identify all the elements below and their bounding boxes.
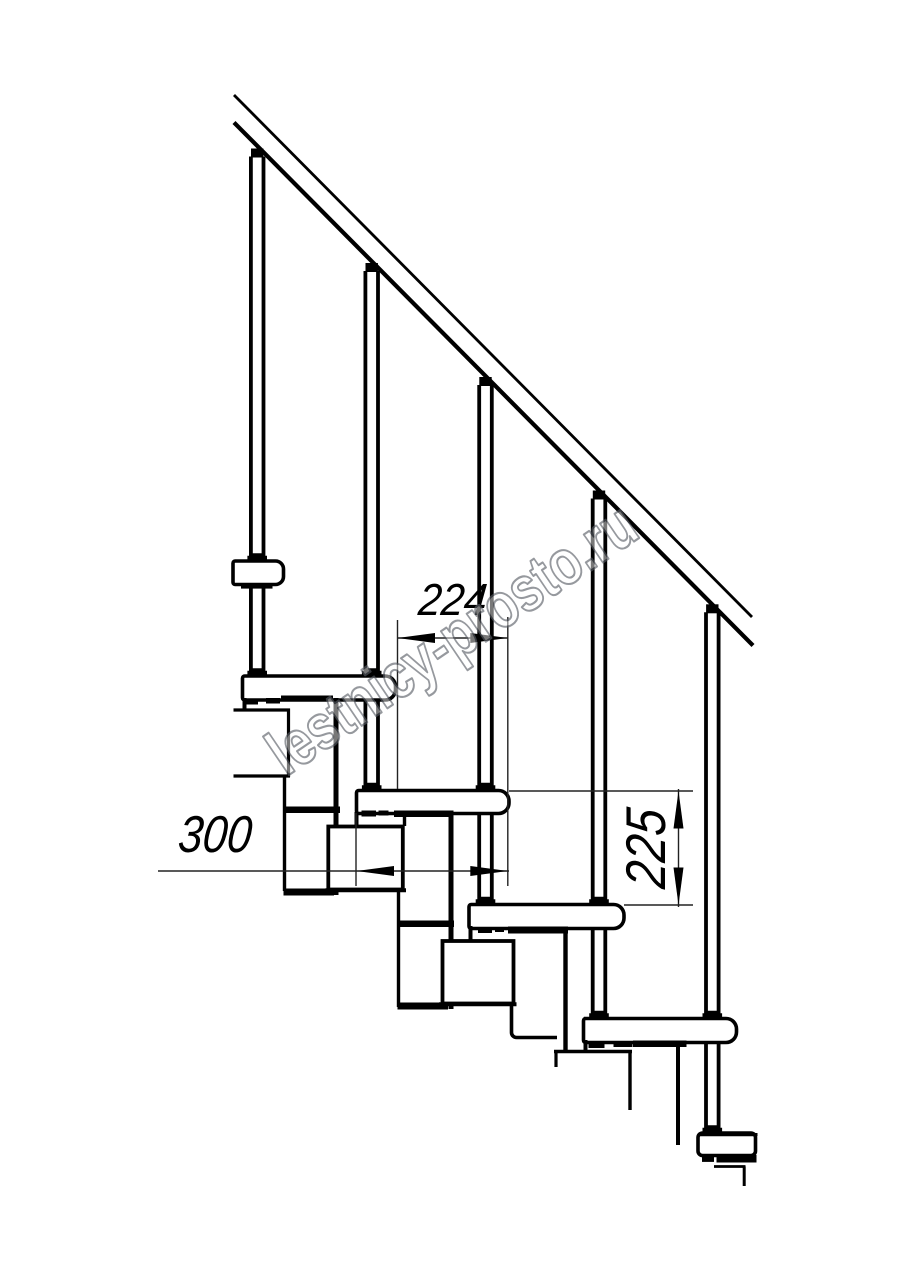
svg-text:lestnicy-prosto.ru: lestnicy-prosto.ru <box>253 488 649 789</box>
